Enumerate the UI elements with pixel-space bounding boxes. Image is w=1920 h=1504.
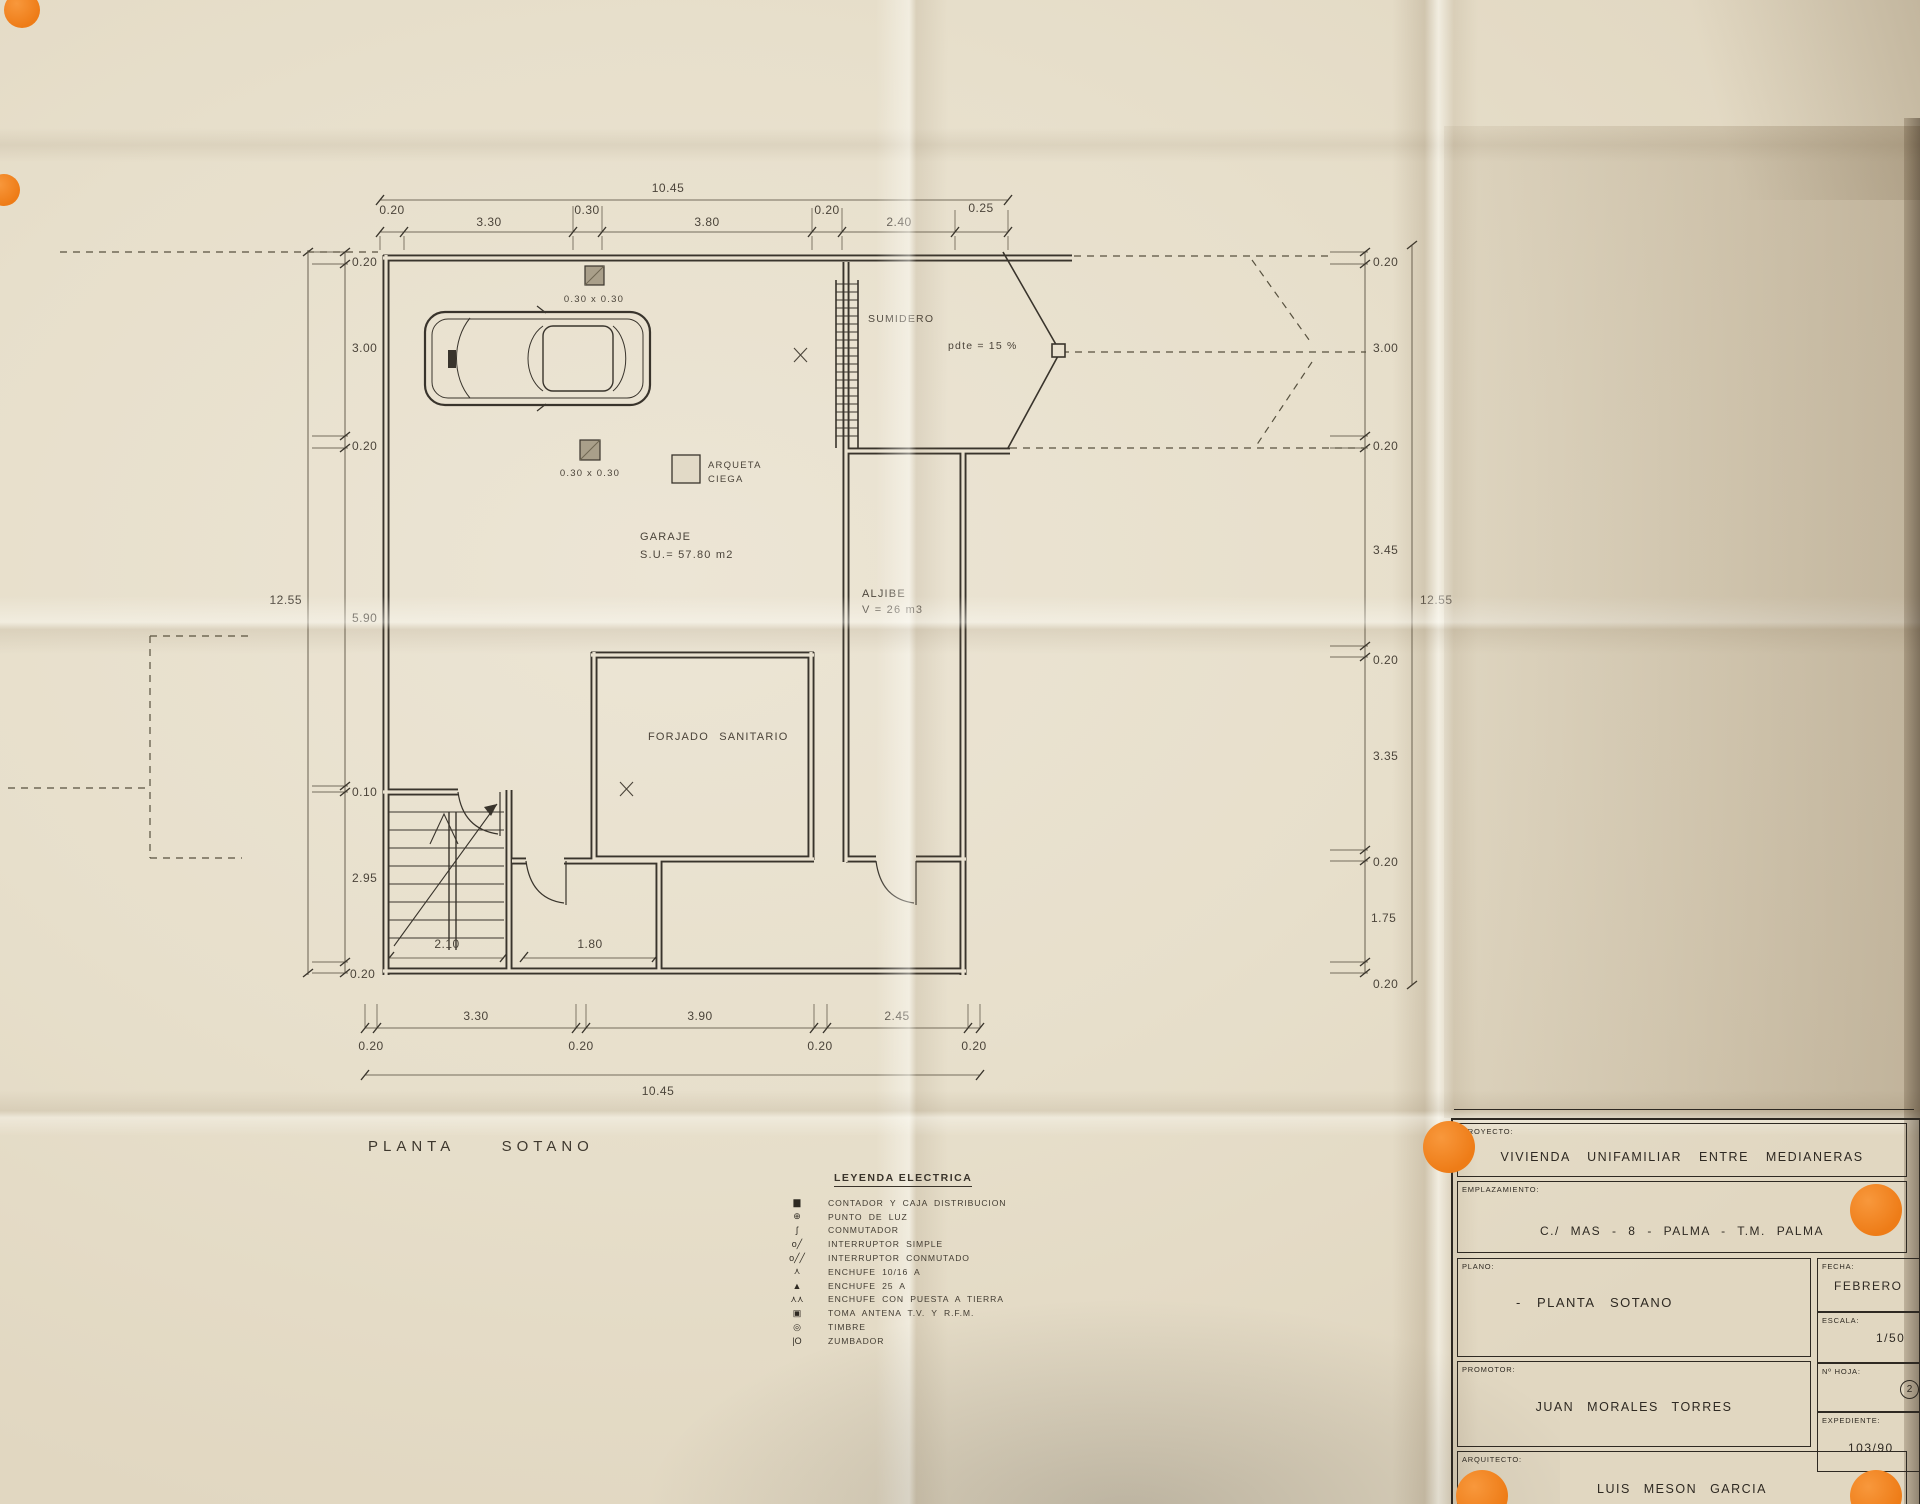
arqueta-ciega-box — [672, 455, 700, 483]
electrical-legend: LEYENDA ELECTRICA ▆CONTADOR Y CAJA DISTR… — [780, 1168, 1050, 1348]
dim-label: 3.00 — [1373, 341, 1398, 355]
pilar-superior-label: 0.30 x 0.30 — [564, 294, 624, 305]
enchufe-25-icon: ▲ — [786, 1281, 808, 1291]
contador-icon: ▆ — [786, 1197, 808, 1208]
promotor-value: JUAN MORALES TORRES — [1458, 1400, 1810, 1414]
dim-label: 0.10 — [352, 785, 377, 799]
dim-label: 0.20 — [352, 255, 377, 269]
legend-item: ʃCONMUTADOR — [780, 1224, 1050, 1238]
plan-title-word2: SOTANO — [502, 1138, 594, 1155]
zumbador-icon: |O — [786, 1336, 808, 1346]
dim-top-total: 10.45 — [652, 181, 685, 195]
legend-item: ▣TOMA ANTENA T.V. Y R.F.M. — [780, 1306, 1050, 1320]
fecha-label: FECHA: — [1822, 1262, 1854, 1271]
legend-item-label: ENCHUFE CON PUESTA A TIERRA — [828, 1294, 1004, 1304]
garaje-label: GARAJE — [640, 531, 691, 543]
dim-label: 0.20 — [358, 1039, 383, 1053]
staircase — [389, 804, 504, 950]
dimension-lines — [308, 200, 1412, 1075]
title-block-top-rule — [1454, 1109, 1914, 1110]
legend-item: o╱╱INTERRUPTOR CONMUTADO — [780, 1251, 1050, 1265]
legend-item-label: PUNTO DE LUZ — [828, 1212, 908, 1222]
dim-cuarto: 1.80 — [577, 937, 602, 951]
blueprint-sheet: 10.45 0.20 3.30 0.30 3.80 0.20 2.40 0.25… — [0, 0, 1920, 1504]
dim-label: 0.20 — [1373, 977, 1398, 991]
enchufe-tierra-icon: ⋏⋏ — [786, 1294, 808, 1305]
titleblock-arquitecto: ARQUITECTO: LUIS MESON GARCIA — [1457, 1451, 1907, 1504]
proyecto-value: VIVIENDA UNIFAMILIAR ENTRE MEDIANERAS — [1458, 1150, 1906, 1164]
dim-label: 0.20 — [352, 439, 377, 453]
legend-item: o╱INTERRUPTOR SIMPLE — [780, 1237, 1050, 1251]
dim-right-total: 12.55 — [1420, 593, 1453, 607]
legend-item-label: ENCHUFE 25 A — [828, 1281, 906, 1291]
legend-item: |OZUMBADOR — [780, 1334, 1050, 1348]
titleblock-promotor: PROMOTOR: JUAN MORALES TORRES — [1457, 1361, 1811, 1447]
orange-sticker — [1423, 1121, 1475, 1173]
walls — [383, 255, 1072, 975]
escala-value: 1/50 — [1818, 1331, 1920, 1345]
dim-left-total: 12.55 — [269, 593, 302, 607]
plan-title: PLANTA SOTANO — [368, 1138, 594, 1155]
dim-label: 0.20 — [568, 1039, 593, 1053]
dim-label: 0.20 — [1373, 855, 1398, 869]
legend-item-label: ENCHUFE 10/16 A — [828, 1267, 921, 1277]
legend-item-label: INTERRUPTOR CONMUTADO — [828, 1253, 970, 1263]
dim-label: 0.20 — [807, 1039, 832, 1053]
dim-escalera: 2.10 — [434, 937, 459, 951]
dim-label: 5.90 — [352, 611, 377, 625]
arquitecto-label: ARQUITECTO: — [1462, 1455, 1522, 1464]
arquitecto-value: LUIS MESON GARCIA — [1458, 1482, 1906, 1496]
dim-label: 2.40 — [886, 215, 911, 229]
arqueta-label-1: ARQUETA — [708, 460, 762, 471]
timbre-icon: ◎ — [786, 1322, 808, 1333]
dim-label: 3.30 — [463, 1009, 488, 1023]
garaje-area-label: S.U.= 57.80 m2 — [640, 549, 734, 561]
dim-label: 0.20 — [379, 203, 404, 217]
fecha-value: FEBRERO — [1818, 1279, 1920, 1293]
hoja-label: Nº HOJA: — [1822, 1367, 1861, 1376]
pencil-marks — [620, 348, 807, 796]
dim-label: 0.20 — [350, 967, 375, 981]
legend-item-label: TOMA ANTENA T.V. Y R.F.M. — [828, 1308, 974, 1318]
dim-bottom-total: 10.45 — [642, 1084, 675, 1098]
toma-antena-icon: ▣ — [786, 1308, 808, 1319]
pilar-central-label: 0.30 x 0.30 — [560, 468, 620, 479]
dimension-ticks — [303, 195, 1417, 1080]
dim-label: 1.75 — [1371, 911, 1396, 925]
dim-label: 3.45 — [1373, 543, 1398, 557]
pillar-top — [585, 266, 604, 285]
legend-item: ▆CONTADOR Y CAJA DISTRIBUCION — [780, 1196, 1050, 1210]
legend-item-label: CONMUTADOR — [828, 1225, 899, 1235]
orange-sticker — [1850, 1184, 1902, 1236]
emplazamiento-value: C./ MAS - 8 - PALMA - T.M. PALMA — [1458, 1224, 1906, 1238]
car — [425, 306, 650, 411]
hoja-value: 2 — [1900, 1380, 1919, 1399]
arqueta-label-2: CIEGA — [708, 474, 744, 485]
dim-label: 2.95 — [352, 871, 377, 885]
dim-label: 3.00 — [352, 341, 377, 355]
interruptor-conmutado-icon: o╱╱ — [786, 1253, 808, 1264]
titleblock-fecha: FECHA: FEBRERO — [1817, 1258, 1920, 1312]
legend-title: LEYENDA ELECTRICA — [834, 1172, 972, 1187]
legend-item: ◎TIMBRE — [780, 1320, 1050, 1334]
punto-luz-icon: ⊕ — [786, 1211, 808, 1222]
room-labels: GARAJE S.U.= 57.80 m2 ALJIBE V = 26 m3 F… — [560, 294, 1018, 743]
dim-label: 0.20 — [1373, 653, 1398, 667]
dim-label: 3.90 — [687, 1009, 712, 1023]
title-block: PROYECTO: VIVIENDA UNIFAMILIAR ENTRE MED… — [1451, 1118, 1920, 1504]
dim-label: 0.20 — [961, 1039, 986, 1053]
plano-value: - PLANTA SOTANO — [1458, 1295, 1868, 1310]
titleblock-plano: PLANO: - PLANTA SOTANO — [1457, 1258, 1811, 1357]
dim-label: 2.45 — [884, 1009, 909, 1023]
legend-item: ⊕PUNTO DE LUZ — [780, 1210, 1050, 1224]
legend-item: ▲ENCHUFE 25 A — [780, 1279, 1050, 1293]
titleblock-hoja: Nº HOJA: 2 — [1817, 1363, 1920, 1412]
emplazamiento-label: EMPLAZAMIENTO: — [1462, 1185, 1539, 1194]
aljibe-vol-label: V = 26 m3 — [862, 604, 923, 616]
interruptor-simple-icon: o╱ — [786, 1239, 808, 1250]
legend-item: ⋏⋏ENCHUFE CON PUESTA A TIERRA — [780, 1293, 1050, 1307]
promotor-label: PROMOTOR: — [1462, 1365, 1515, 1374]
dim-label: 3.80 — [694, 215, 719, 229]
dim-label: 0.25 — [968, 201, 993, 215]
pendiente-label: pdte = 15 % — [948, 340, 1018, 352]
sumidero-label: SUMIDERO — [868, 313, 934, 325]
legend-item-label: TIMBRE — [828, 1322, 866, 1332]
dim-label: 3.30 — [476, 215, 501, 229]
legend-item: ⋏ENCHUFE 10/16 A — [780, 1265, 1050, 1279]
forjado-label: FORJADO SANITARIO — [648, 731, 788, 743]
dim-label: 0.30 — [574, 203, 599, 217]
expediente-label: EXPEDIENTE: — [1822, 1416, 1880, 1425]
titleblock-escala: ESCALA: 1/50 — [1817, 1312, 1920, 1363]
plano-label: PLANO: — [1462, 1262, 1494, 1271]
pillar-mid — [580, 440, 600, 460]
plan-title-word1: PLANTA — [368, 1138, 454, 1155]
legend-item-label: CONTADOR Y CAJA DISTRIBUCION — [828, 1198, 1006, 1208]
legend-item-label: ZUMBADOR — [828, 1336, 884, 1346]
legend-item-label: INTERRUPTOR SIMPLE — [828, 1239, 943, 1249]
legend-list: ▆CONTADOR Y CAJA DISTRIBUCION ⊕PUNTO DE … — [780, 1196, 1050, 1348]
conmutador-icon: ʃ — [786, 1225, 808, 1235]
aljibe-label: ALJIBE — [862, 588, 906, 600]
escala-label: ESCALA: — [1822, 1316, 1859, 1325]
dim-label: 0.20 — [814, 203, 839, 217]
titleblock-proyecto: PROYECTO: VIVIENDA UNIFAMILIAR ENTRE MED… — [1457, 1123, 1907, 1177]
dim-label: 3.35 — [1373, 749, 1398, 763]
dim-label: 0.20 — [1373, 439, 1398, 453]
titleblock-emplazamiento: EMPLAZAMIENTO: C./ MAS - 8 - PALMA - T.M… — [1457, 1181, 1907, 1253]
enchufe-icon: ⋏ — [786, 1266, 808, 1277]
dim-label: 0.20 — [1373, 255, 1398, 269]
